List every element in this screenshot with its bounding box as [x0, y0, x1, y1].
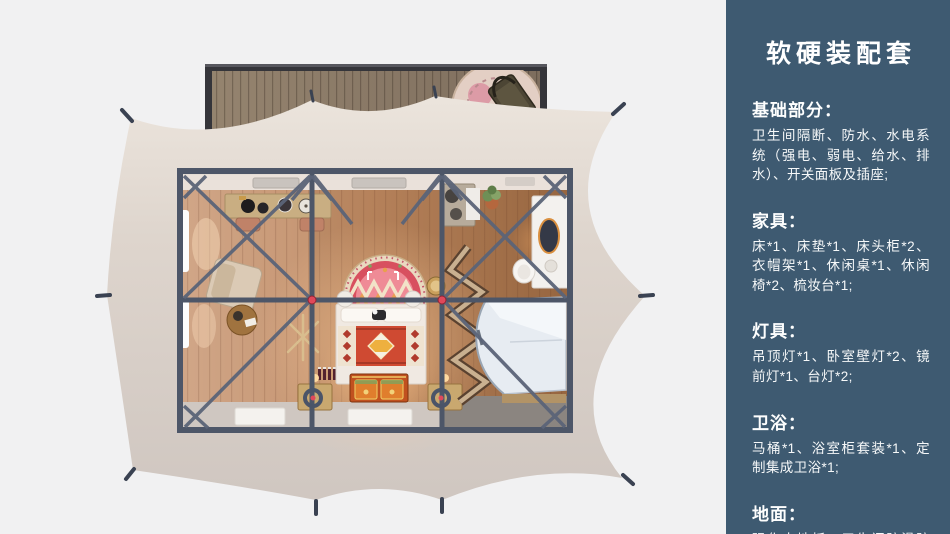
camphor-chest — [350, 374, 408, 402]
section-heading: 家具： — [752, 207, 930, 232]
leisure-table — [227, 305, 257, 335]
basin — [545, 260, 557, 272]
page: 软硬装配套 基础部分： 卫生间隔断、防水、水电系统（强电、弱电、给水、排水）、开… — [0, 0, 950, 534]
section-heading: 基础部分： — [752, 96, 930, 121]
bed — [336, 304, 426, 384]
section-body: 吊顶灯*1、卧室壁灯*2、镜前灯*1、台灯*2; — [752, 347, 930, 386]
floorplan-scene — [0, 0, 726, 534]
section-heading: 地面： — [752, 500, 930, 525]
dressing-table — [532, 196, 572, 288]
floorplan-svg — [0, 0, 726, 534]
blanket — [338, 326, 424, 366]
section-bathroom: 卫浴： 马桶*1、浴室柜套装*1、定制集成卫浴*1; — [752, 409, 930, 478]
section-furniture: 家具： 床*1、床垫*1、床头柜*2、衣帽架*1、休闲桌*1、休闲椅*2、梳妆台… — [752, 207, 930, 296]
section-flooring: 地面： 强化木地板、卫生间防滑防潮石塑板; — [752, 500, 930, 534]
ceiling-vent — [352, 178, 406, 188]
room — [179, 171, 572, 460]
deck-rail — [205, 64, 547, 67]
panel-sections: 基础部分： 卫生间隔断、防水、水电系统（强电、弱电、给水、排水）、开关面板及插座… — [752, 96, 930, 534]
mirror — [539, 219, 559, 253]
section-basics: 基础部分： 卫生间隔断、防水、水电系统（强电、弱电、给水、排水）、开关面板及插座… — [752, 96, 930, 185]
ceiling-vent — [505, 177, 535, 186]
panel-title: 软硬装配套 — [752, 34, 930, 70]
ceiling-vent — [253, 178, 299, 188]
section-body: 床*1、床垫*1、床头柜*2、衣帽架*1、休闲桌*1、休闲椅*2、梳妆台*1; — [752, 237, 930, 296]
trinket — [239, 196, 246, 200]
connector-node — [438, 296, 446, 304]
hat — [258, 203, 269, 214]
info-panel: 软硬装配套 基础部分： 卫生间隔断、防水、水电系统（强电、弱电、给水、排水）、开… — [726, 0, 950, 534]
doormat — [235, 408, 285, 425]
doormat — [348, 409, 412, 425]
pillow — [383, 308, 421, 322]
hat — [241, 199, 255, 213]
ceiling-band — [183, 175, 567, 190]
section-body: 强化木地板、卫生间防滑防潮石塑板; — [752, 530, 930, 534]
section-lighting: 灯具： 吊顶灯*1、卧室壁灯*2、镜前灯*1、台灯*2; — [752, 317, 930, 386]
section-heading: 灯具： — [752, 317, 930, 342]
section-heading: 卫浴： — [752, 409, 930, 434]
connector-node — [308, 296, 316, 304]
section-body: 卫生间隔断、防水、水电系统（强电、弱电、给水、排水）、开关面板及插座; — [752, 126, 930, 185]
section-body: 马桶*1、浴室柜套装*1、定制集成卫浴*1; — [752, 439, 930, 478]
